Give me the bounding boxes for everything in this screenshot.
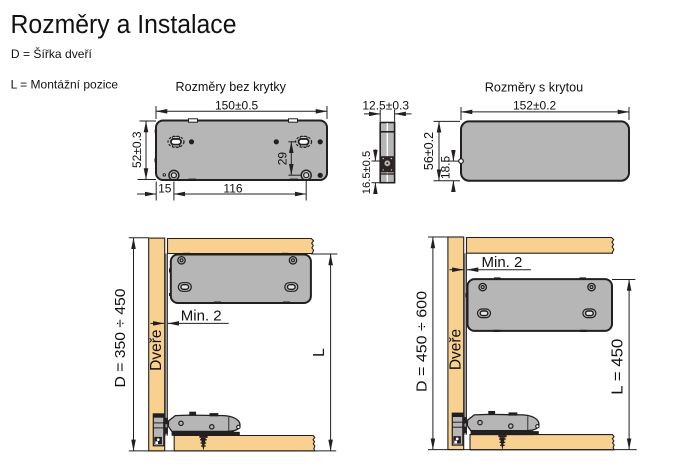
svg-text:150±0.5: 150±0.5 xyxy=(215,98,259,112)
svg-text:Rozměry a Instalace: Rozměry a Instalace xyxy=(11,9,237,39)
svg-text:52±0.3: 52±0.3 xyxy=(130,131,144,168)
svg-text:12.5±0.3: 12.5±0.3 xyxy=(362,99,409,113)
svg-text:D = 450 ÷ 600: D = 450 ÷ 600 xyxy=(413,291,430,392)
svg-text:L = 450: L = 450 xyxy=(609,338,626,394)
svg-text:29: 29 xyxy=(275,152,289,166)
svg-text:152±0.2: 152±0.2 xyxy=(513,98,557,112)
svg-text:L = Montážní pozice: L = Montážní pozice xyxy=(11,78,119,92)
svg-text:Dveře: Dveře xyxy=(447,329,464,370)
svg-text:D = 350 ÷ 450: D = 350 ÷ 450 xyxy=(112,289,129,388)
svg-text:Rozměry s krytou: Rozměry s krytou xyxy=(485,80,583,94)
svg-text:116: 116 xyxy=(223,181,242,195)
svg-text:Dveře: Dveře xyxy=(148,330,165,371)
svg-text:15: 15 xyxy=(158,181,172,195)
svg-text:Min. 2: Min. 2 xyxy=(482,254,523,271)
svg-text:Min. 2: Min. 2 xyxy=(181,307,222,324)
svg-text:D = Šířka dveří: D = Šířka dveří xyxy=(11,47,93,61)
svg-text:16.5±0.5: 16.5±0.5 xyxy=(361,151,373,194)
svg-text:18.5: 18.5 xyxy=(439,155,453,179)
svg-text:Rozměry bez krytky: Rozměry bez krytky xyxy=(176,80,287,94)
svg-text:56±0.2: 56±0.2 xyxy=(422,132,436,170)
svg-text:L: L xyxy=(311,348,328,357)
